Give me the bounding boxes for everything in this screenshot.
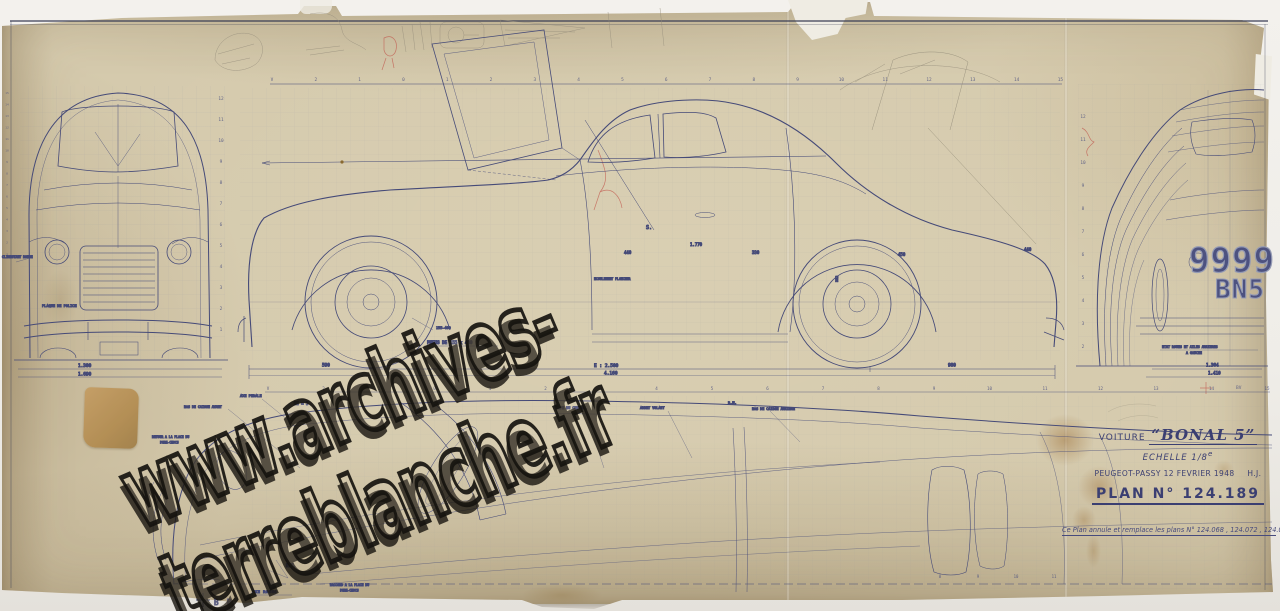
scale-value: 1/8: [1191, 453, 1208, 463]
svg-text:3: 3: [1082, 321, 1085, 327]
svg-text:7: 7: [822, 386, 825, 391]
svg-text:6: 6: [1082, 252, 1085, 258]
blueprint-linework: BV CLIGNOTANT ROUGE PLAQUE DE POLICE: [0, 0, 1280, 611]
svg-text:12: 12: [926, 77, 932, 83]
jupe-central-label: JUPE DU CENTRAL: [556, 406, 587, 410]
svg-text:10: 10: [1080, 160, 1086, 166]
svg-text:1: 1: [489, 386, 492, 391]
svg-text:10: 10: [839, 77, 845, 83]
svg-text:8: 8: [220, 180, 223, 186]
origin-date: PEUGEOT-PASSY 12 FEVRIER 1948: [1095, 469, 1235, 478]
mc5-label: MC = 5: [294, 401, 309, 406]
red-bv-mark: BV: [1236, 385, 1242, 391]
rear-view-drawing: 9999 BN5 ETAT ROUES ET AILES ARRIERES A …: [1076, 84, 1275, 377]
svg-text:8: 8: [877, 386, 880, 391]
svg-text:1: 1: [6, 252, 8, 256]
svg-text:11: 11: [1080, 137, 1086, 143]
dim-1770: 1.770: [690, 242, 703, 247]
scale-label: ECHELLE: [1143, 453, 1188, 463]
dim-332: 332: [835, 276, 839, 282]
svg-text:11: 11: [218, 117, 224, 123]
rear-note-line1: ETAT ROUES ET AILES ARRIERES: [1162, 345, 1218, 349]
svg-text:0: 0: [402, 77, 405, 83]
origin-row: PEUGEOT-PASSY 12 FEVRIER 1948 H.J.: [1078, 469, 1278, 478]
svg-text:12: 12: [5, 126, 9, 130]
svg-text:4: 4: [655, 386, 658, 391]
dim-450: 450: [898, 252, 906, 257]
svg-text:9: 9: [796, 77, 799, 83]
retour-label-1: RETOUR A LA PLACE DU: [152, 435, 189, 439]
front-view-drawing: CLIGNOTANT ROUGE PLAQUE DE POLICE 1.380 …: [2, 86, 228, 378]
svg-text:4: 4: [220, 264, 223, 270]
svg-text:V: V: [267, 386, 270, 391]
front-width-dim: 1.380: [78, 363, 92, 369]
svg-text:14: 14: [1209, 386, 1215, 391]
draughtsman-initials: H.J.: [1247, 469, 1261, 478]
plan-number: PLAN N° 124.189: [1092, 486, 1264, 505]
scanned-blueprint-page: BV CLIGNOTANT ROUGE PLAQUE DE POLICE: [0, 0, 1280, 611]
bb-datum-label: B B: [214, 598, 234, 607]
vehicle-name: “BONAL 5”: [1149, 426, 1257, 445]
svg-text:6: 6: [220, 222, 223, 228]
scale-suffix: e: [1208, 449, 1213, 458]
svg-text:8: 8: [1082, 206, 1085, 212]
svg-text:9: 9: [6, 160, 8, 164]
tire-size-label: PNEUS DE 155 x 400: [427, 340, 473, 345]
svg-text:2: 2: [314, 77, 317, 83]
raccord-label-1: RACCORD A LA PLACE DU: [330, 583, 369, 587]
svg-text:5: 5: [711, 386, 714, 391]
rear-overhang-dim: 980: [948, 363, 956, 369]
rear-width-dim: 1.410: [1208, 371, 1221, 376]
side-view-station-ruler: V210123456789101112131415: [271, 77, 1064, 83]
bas-arriere-label: BAS DE CAISSE ARRIERE: [752, 407, 795, 411]
svg-text:7: 7: [220, 201, 223, 207]
rear-note-line2: A GAUCHE: [1186, 351, 1202, 355]
svg-text:4: 4: [6, 218, 8, 222]
plan-view-station-ruler: V210123456789101112131415: [267, 386, 1270, 391]
arret-volant-label: ARRET VOLANT: [640, 406, 665, 410]
axe-pedale-label: AXE PEDALE: [240, 394, 262, 398]
front-view-left-scale: 151413121110987654321: [5, 91, 9, 256]
svg-text:3: 3: [220, 285, 223, 291]
svg-text:7: 7: [6, 183, 8, 187]
plaque-police-label: PLAQUE DE POLICE: [42, 304, 77, 308]
svg-text:12: 12: [1080, 114, 1086, 120]
front-width-dim: 1.690: [78, 372, 92, 378]
svg-text:1: 1: [358, 77, 361, 83]
svg-text:8: 8: [752, 77, 755, 83]
svg-text:12: 12: [218, 96, 224, 102]
license-plate-letters: BN5: [1215, 275, 1265, 305]
rear-width-dim: 1.304: [1206, 363, 1219, 368]
svg-text:5: 5: [1082, 275, 1085, 281]
svg-text:9: 9: [933, 386, 936, 391]
svg-text:15: 15: [5, 91, 9, 95]
svg-text:V: V: [271, 77, 274, 83]
svg-text:5: 5: [220, 243, 223, 249]
svg-text:2: 2: [220, 306, 223, 312]
svg-text:2: 2: [490, 77, 493, 83]
svg-text:1: 1: [220, 327, 223, 333]
svg-text:6: 6: [6, 195, 8, 199]
svg-text:3: 3: [600, 386, 603, 391]
svg-text:2: 2: [6, 241, 8, 245]
vehicle-title-row: VOITURE “BONAL 5”: [1078, 426, 1278, 444]
svg-text:13: 13: [970, 77, 976, 83]
front-overhang-dim: 590: [322, 363, 330, 369]
svg-text:15: 15: [1058, 77, 1064, 83]
svg-text:11: 11: [5, 137, 9, 141]
svg-text:4: 4: [577, 77, 580, 83]
svg-text:1: 1: [378, 386, 381, 391]
svg-text:6: 6: [766, 386, 769, 391]
svg-text:13: 13: [5, 114, 9, 118]
vehicle-label: VOITURE: [1099, 433, 1146, 443]
svg-text:9: 9: [220, 159, 223, 165]
axe-roues-label: AXE ROUES: [252, 589, 277, 594]
svg-text:7: 7: [709, 77, 712, 83]
svg-text:14: 14: [1014, 77, 1020, 83]
svg-text:11: 11: [883, 77, 889, 83]
dim-440: 440: [624, 250, 632, 255]
svg-text:1: 1: [446, 77, 449, 83]
svg-text:13: 13: [1153, 386, 1159, 391]
svg-text:14: 14: [5, 103, 9, 107]
svg-text:9: 9: [1082, 183, 1085, 189]
raccord-label-2: PARE-CHOCS: [340, 589, 359, 593]
svg-text:0: 0: [433, 386, 436, 391]
ecoulement-label: ECOULEMENT PLANCHER: [594, 277, 631, 281]
rm-label: R.M.: [286, 563, 296, 568]
svg-text:15: 15: [1264, 386, 1270, 391]
wheelbase-dim: E : 2.580: [594, 363, 619, 369]
retour-label-2: PARE-CHOCS: [160, 441, 179, 445]
svg-text:5: 5: [621, 77, 624, 83]
svg-text:2: 2: [1082, 344, 1085, 350]
revision-note: Ce Plan annule et remplace les plans N° …: [1062, 526, 1276, 536]
svg-text:10: 10: [1014, 574, 1019, 579]
svg-text:7: 7: [1082, 229, 1085, 235]
svg-text:2: 2: [544, 386, 547, 391]
side-view-drawing: 155-400 PNEUS DE 155 x 400 S. 440 330 1.…: [238, 30, 1064, 379]
s-mark: S.: [646, 225, 652, 231]
rm2-label: R.M.: [728, 401, 737, 405]
svg-text:10: 10: [987, 386, 993, 391]
svg-text:12: 12: [1098, 386, 1104, 391]
svg-text:11: 11: [1042, 386, 1048, 391]
bas-avant-label: BAS DE CAISSE AVANT: [184, 405, 222, 409]
svg-text:11: 11: [1052, 574, 1057, 579]
svg-text:10: 10: [5, 149, 9, 153]
length-dim: 4.160: [604, 371, 618, 377]
title-block: VOITURE “BONAL 5” ECHELLE 1/8e PEUGEOT-P…: [1078, 426, 1278, 505]
dim-440b: 440: [1024, 247, 1032, 252]
scale-row: ECHELLE 1/8e: [1078, 449, 1278, 463]
svg-text:3: 3: [533, 77, 536, 83]
svg-text:5: 5: [6, 206, 8, 210]
svg-text:4: 4: [1082, 298, 1085, 304]
tire-size-alt: 155-400: [436, 326, 451, 330]
svg-text:10: 10: [218, 138, 224, 144]
dim-330: 330: [752, 250, 760, 255]
svg-text:2: 2: [322, 386, 325, 391]
svg-text:3: 3: [6, 229, 8, 233]
svg-text:8: 8: [6, 172, 8, 176]
svg-text:6: 6: [665, 77, 668, 83]
